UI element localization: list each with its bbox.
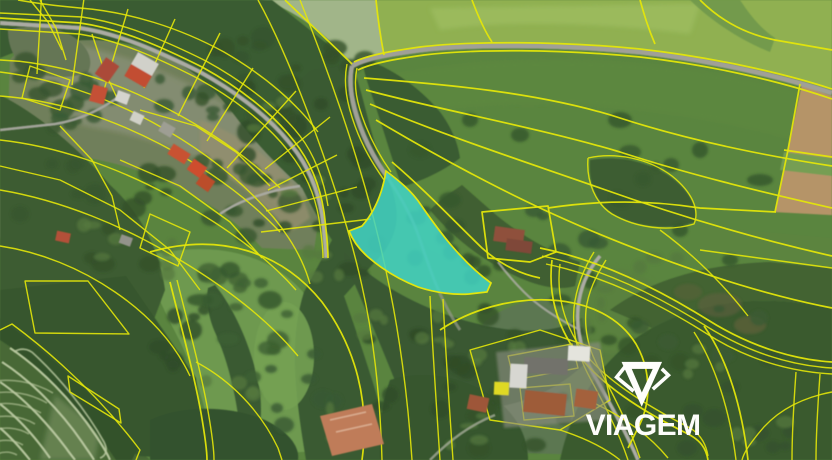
svg-text:VIAGEM: VIAGEM (586, 409, 701, 442)
